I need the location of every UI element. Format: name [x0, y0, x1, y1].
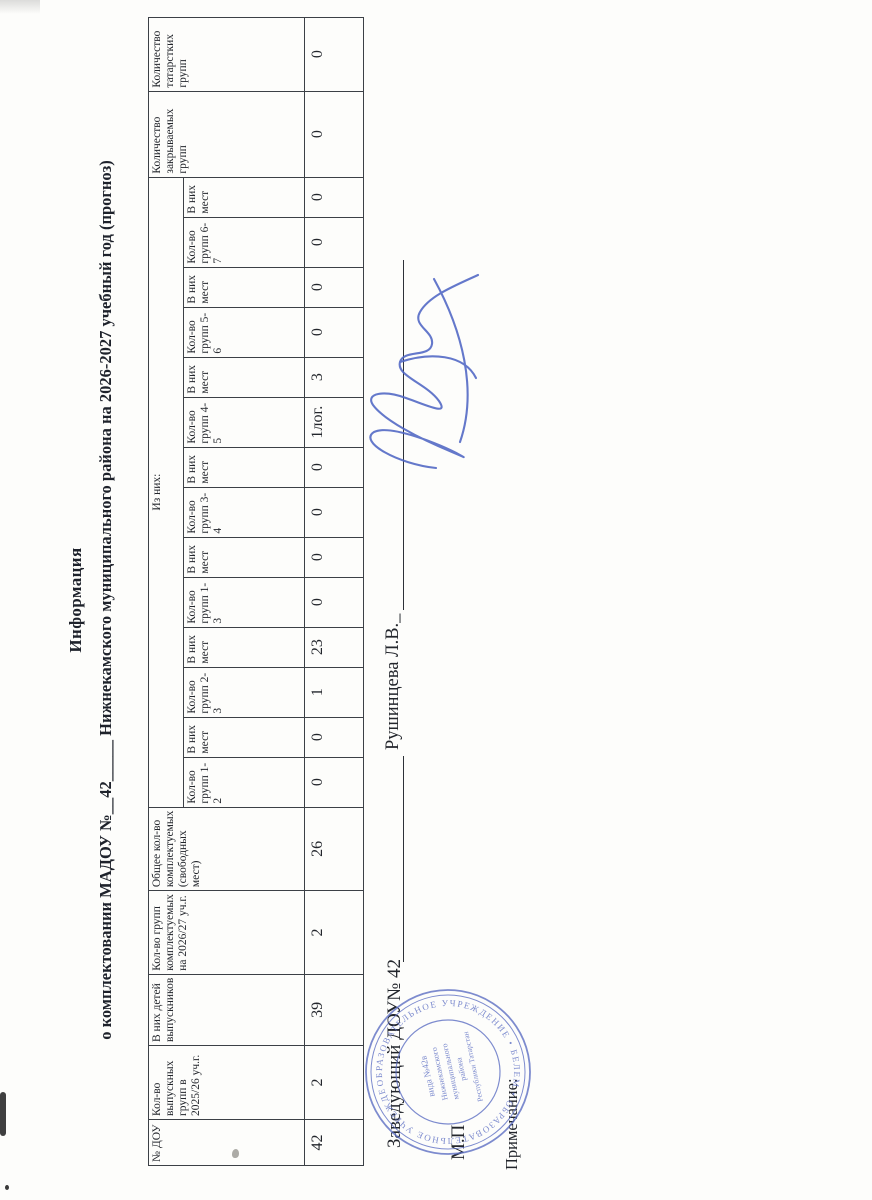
- header-tatar-groups: Количество татарстких групп: [149, 17, 305, 91]
- subheader-places-3-4: В них мест: [184, 447, 305, 487]
- value-groups-6-7: 0: [305, 217, 364, 267]
- staffing-table: № ДОУ Кол-во выпускных групп в 2025/26 у…: [148, 17, 364, 1166]
- header-dou: № ДОУ: [149, 1120, 305, 1166]
- subheader-places-4-5: В них мест: [184, 357, 305, 397]
- value-closing-groups: 0: [305, 91, 364, 177]
- document-title: Информация: [66, 0, 86, 1200]
- signature-name: Рушинцева Л.В._: [383, 614, 404, 750]
- value-groups-3-4: 0: [305, 487, 364, 537]
- subheader-groups-3-4: Кол-во групп 3-4: [184, 487, 305, 537]
- scan-corner-shade: [0, 0, 40, 14]
- handwritten-signature: [346, 267, 486, 482]
- subheader-places-5-6: В них мест: [184, 267, 305, 307]
- value-groups-1-2: 0: [305, 757, 364, 807]
- value-groups-to-fill: 2: [305, 891, 364, 975]
- value-groups-1-3: 0: [305, 577, 364, 627]
- value-tatar-groups: 0: [305, 17, 364, 91]
- value-places-1-3: 0: [305, 537, 364, 577]
- header-graduating-groups: Кол-во выпускных групп в 2025/26 уч.г.: [149, 1046, 305, 1120]
- scanned-page: Информация о комплектовании МАДОУ №__42_…: [0, 0, 872, 1200]
- subheader-places-1-2: В них мест: [184, 717, 305, 757]
- subheader-groups-5-6: Кол-во групп 5-6: [184, 307, 305, 357]
- header-iz-nih: Из них:: [149, 177, 184, 807]
- value-places-6-7: 0: [305, 177, 364, 217]
- signature-line: [403, 756, 404, 962]
- scan-pen-mark: [232, 1149, 239, 1158]
- subheader-groups-4-5: Кол-во групп 4-5: [184, 397, 305, 447]
- value-groups-2-3: 1: [305, 667, 364, 717]
- header-total-free-places: Общее кол-во комплектуемых (свободных ме…: [149, 807, 305, 891]
- subheader-groups-1-2: Кол-во групп 1-2: [184, 757, 305, 807]
- scan-smudge: [0, 1092, 6, 1136]
- subheader-places-1-3: В них мест: [184, 537, 305, 577]
- value-total-free-places: 26: [305, 807, 364, 891]
- header-closing-groups: Количество закрываемых групп: [149, 91, 305, 177]
- header-graduating-children: В них детей выпускников: [149, 974, 305, 1045]
- value-graduating-groups: 2: [305, 1046, 364, 1120]
- subheader-groups-2-3: Кол-во групп 2-3: [184, 667, 305, 717]
- document-page: Информация о комплектовании МАДОУ №__42_…: [0, 0, 872, 1200]
- document-subtitle: о комплектовании МАДОУ №__42_____ Нижнек…: [96, 0, 116, 1200]
- subheader-places-6-7: В них мест: [184, 177, 305, 217]
- value-dou: 42: [305, 1120, 364, 1166]
- subheader-groups-1-3: Кол-во групп 1-3: [184, 577, 305, 627]
- scan-speck: [5, 1185, 9, 1190]
- official-seal: ОБРАЗОВАТЕЛЬНОЕ УЧРЕЖДЕНИЕ • БЕЛЕМ • ОБР…: [346, 970, 550, 1174]
- subheader-groups-6-7: Кол-во групп 6-7: [184, 217, 305, 267]
- header-groups-to-fill: Кол-во групп комплектуемых на 2026/27 уч…: [149, 891, 305, 975]
- value-places-2-3: 23: [305, 627, 364, 667]
- subheader-places-2-3: В них мест: [184, 627, 305, 667]
- value-places-1-2: 0: [305, 717, 364, 757]
